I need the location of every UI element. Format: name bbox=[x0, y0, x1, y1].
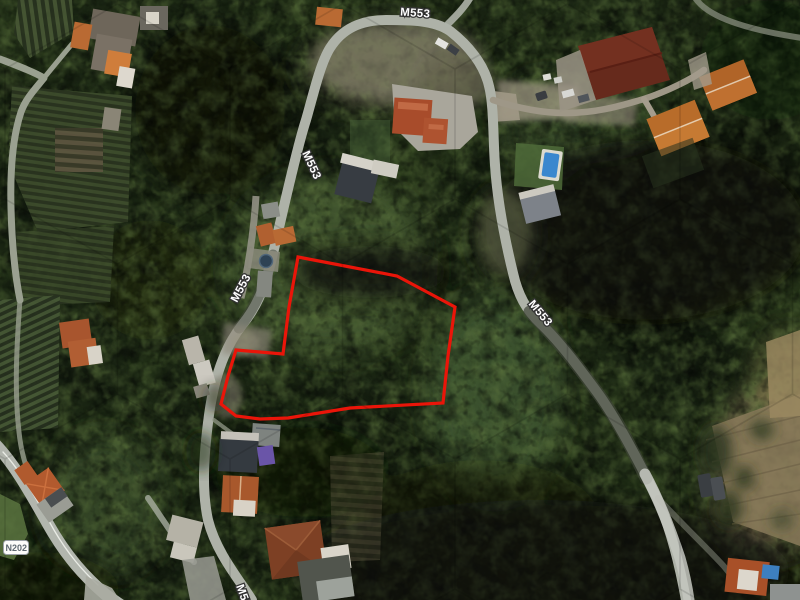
svg-text:N202: N202 bbox=[6, 543, 28, 553]
svg-text:M553: M553 bbox=[400, 7, 431, 21]
